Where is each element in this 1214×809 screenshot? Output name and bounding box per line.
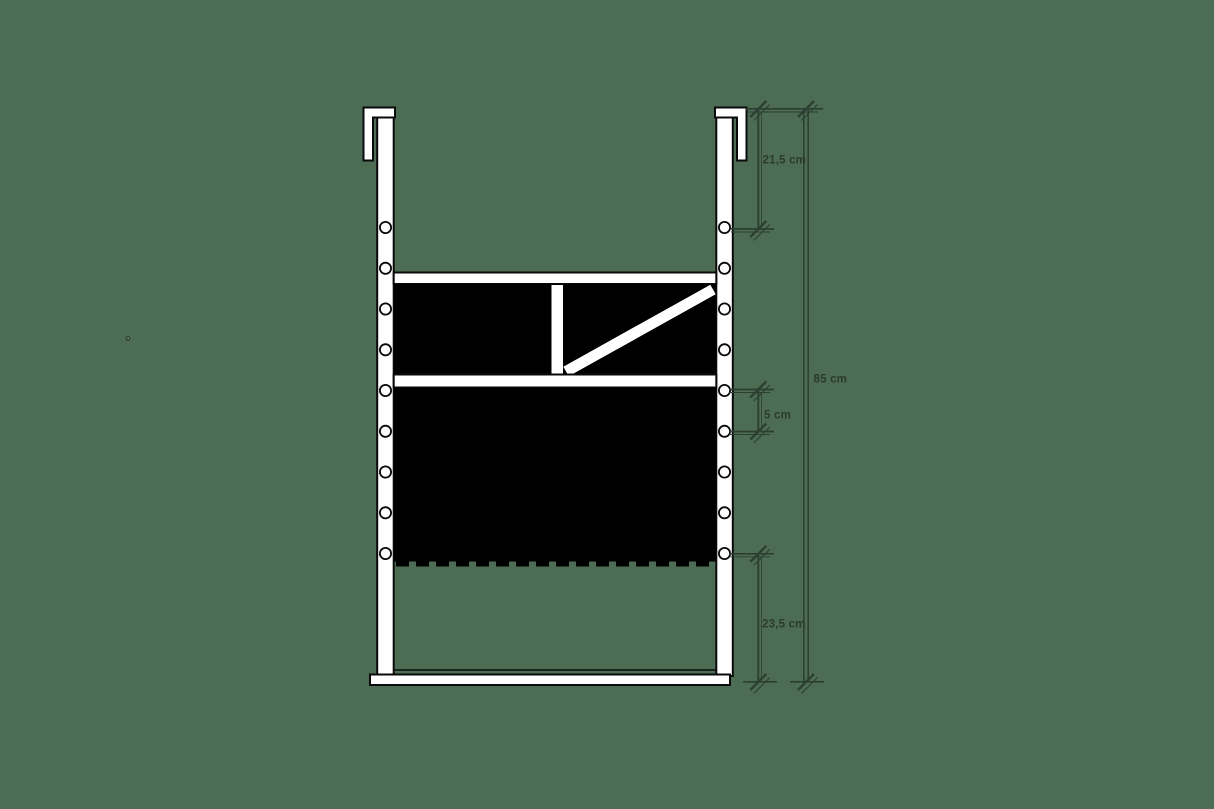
left-post-hole <box>380 466 391 477</box>
technical-drawing-canvas: 21,5 cm 85 cm 5 cm 23,5 cm <box>0 0 1214 809</box>
left-post-hole <box>380 507 391 518</box>
left-post-hole <box>380 222 391 233</box>
bottom-rail <box>370 675 730 686</box>
right-post-hole <box>719 426 730 437</box>
right-post-hole <box>719 548 730 559</box>
lower-panel <box>394 388 716 562</box>
right-post-hole <box>719 385 730 396</box>
dimension-label-panel-to-base: 23,5 cm <box>762 619 806 631</box>
right-post-hole <box>719 507 730 518</box>
background-speck <box>126 336 131 341</box>
left-post-hole <box>380 303 391 314</box>
left-post-hole <box>380 263 391 274</box>
left-post-hole <box>380 426 391 437</box>
frame-hooks <box>364 108 747 161</box>
dimension-label-hook-to-first-hole: 21,5 cm <box>763 155 807 167</box>
left-post-hole <box>380 344 391 355</box>
dimension-label-overall-height: 85 cm <box>814 374 848 386</box>
right-post-hole <box>719 303 730 314</box>
left-post-hole <box>380 548 391 559</box>
left-post-hole <box>380 385 391 396</box>
dimension-lines <box>729 101 824 694</box>
frame-panels <box>370 273 730 686</box>
dimension-label-rail-gap: 5 cm <box>764 410 791 422</box>
dimension-ticks <box>750 101 817 694</box>
upper-panel-divider <box>552 285 564 374</box>
right-post-hole <box>719 222 730 233</box>
right-post-hole <box>719 344 730 355</box>
top-rail <box>394 273 717 285</box>
middle-rail <box>394 375 717 388</box>
speck-highlight <box>127 338 128 340</box>
dimension-labels: 21,5 cm 85 cm 5 cm 23,5 cm <box>762 155 847 631</box>
frame-elevation-drawing: 21,5 cm 85 cm 5 cm 23,5 cm <box>0 0 1214 809</box>
right-post-hole <box>719 466 730 477</box>
right-post-hole <box>719 263 730 274</box>
